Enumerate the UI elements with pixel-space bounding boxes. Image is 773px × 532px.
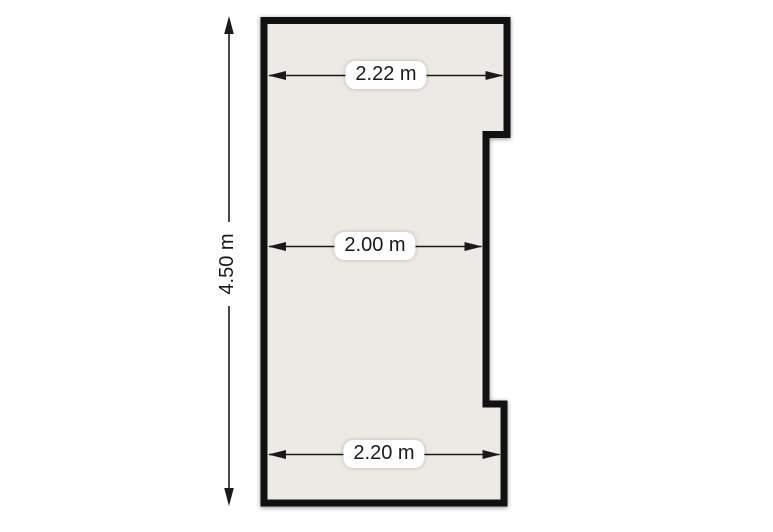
floor-plan-canvas: 4.50 m 2.22 m 2.00 m 2.20 m (0, 0, 773, 532)
arrowhead-up-icon (224, 16, 234, 34)
dimension-label-top-width: 2.22 m (345, 61, 426, 89)
dimension-label-middle-width: 2.00 m (334, 232, 415, 260)
arrowhead-down-icon (224, 488, 234, 506)
room-outline (264, 21, 507, 504)
dimension-label-bottom-width: 2.20 m (343, 440, 424, 468)
dimension-label-height: 4.50 m (214, 227, 242, 300)
